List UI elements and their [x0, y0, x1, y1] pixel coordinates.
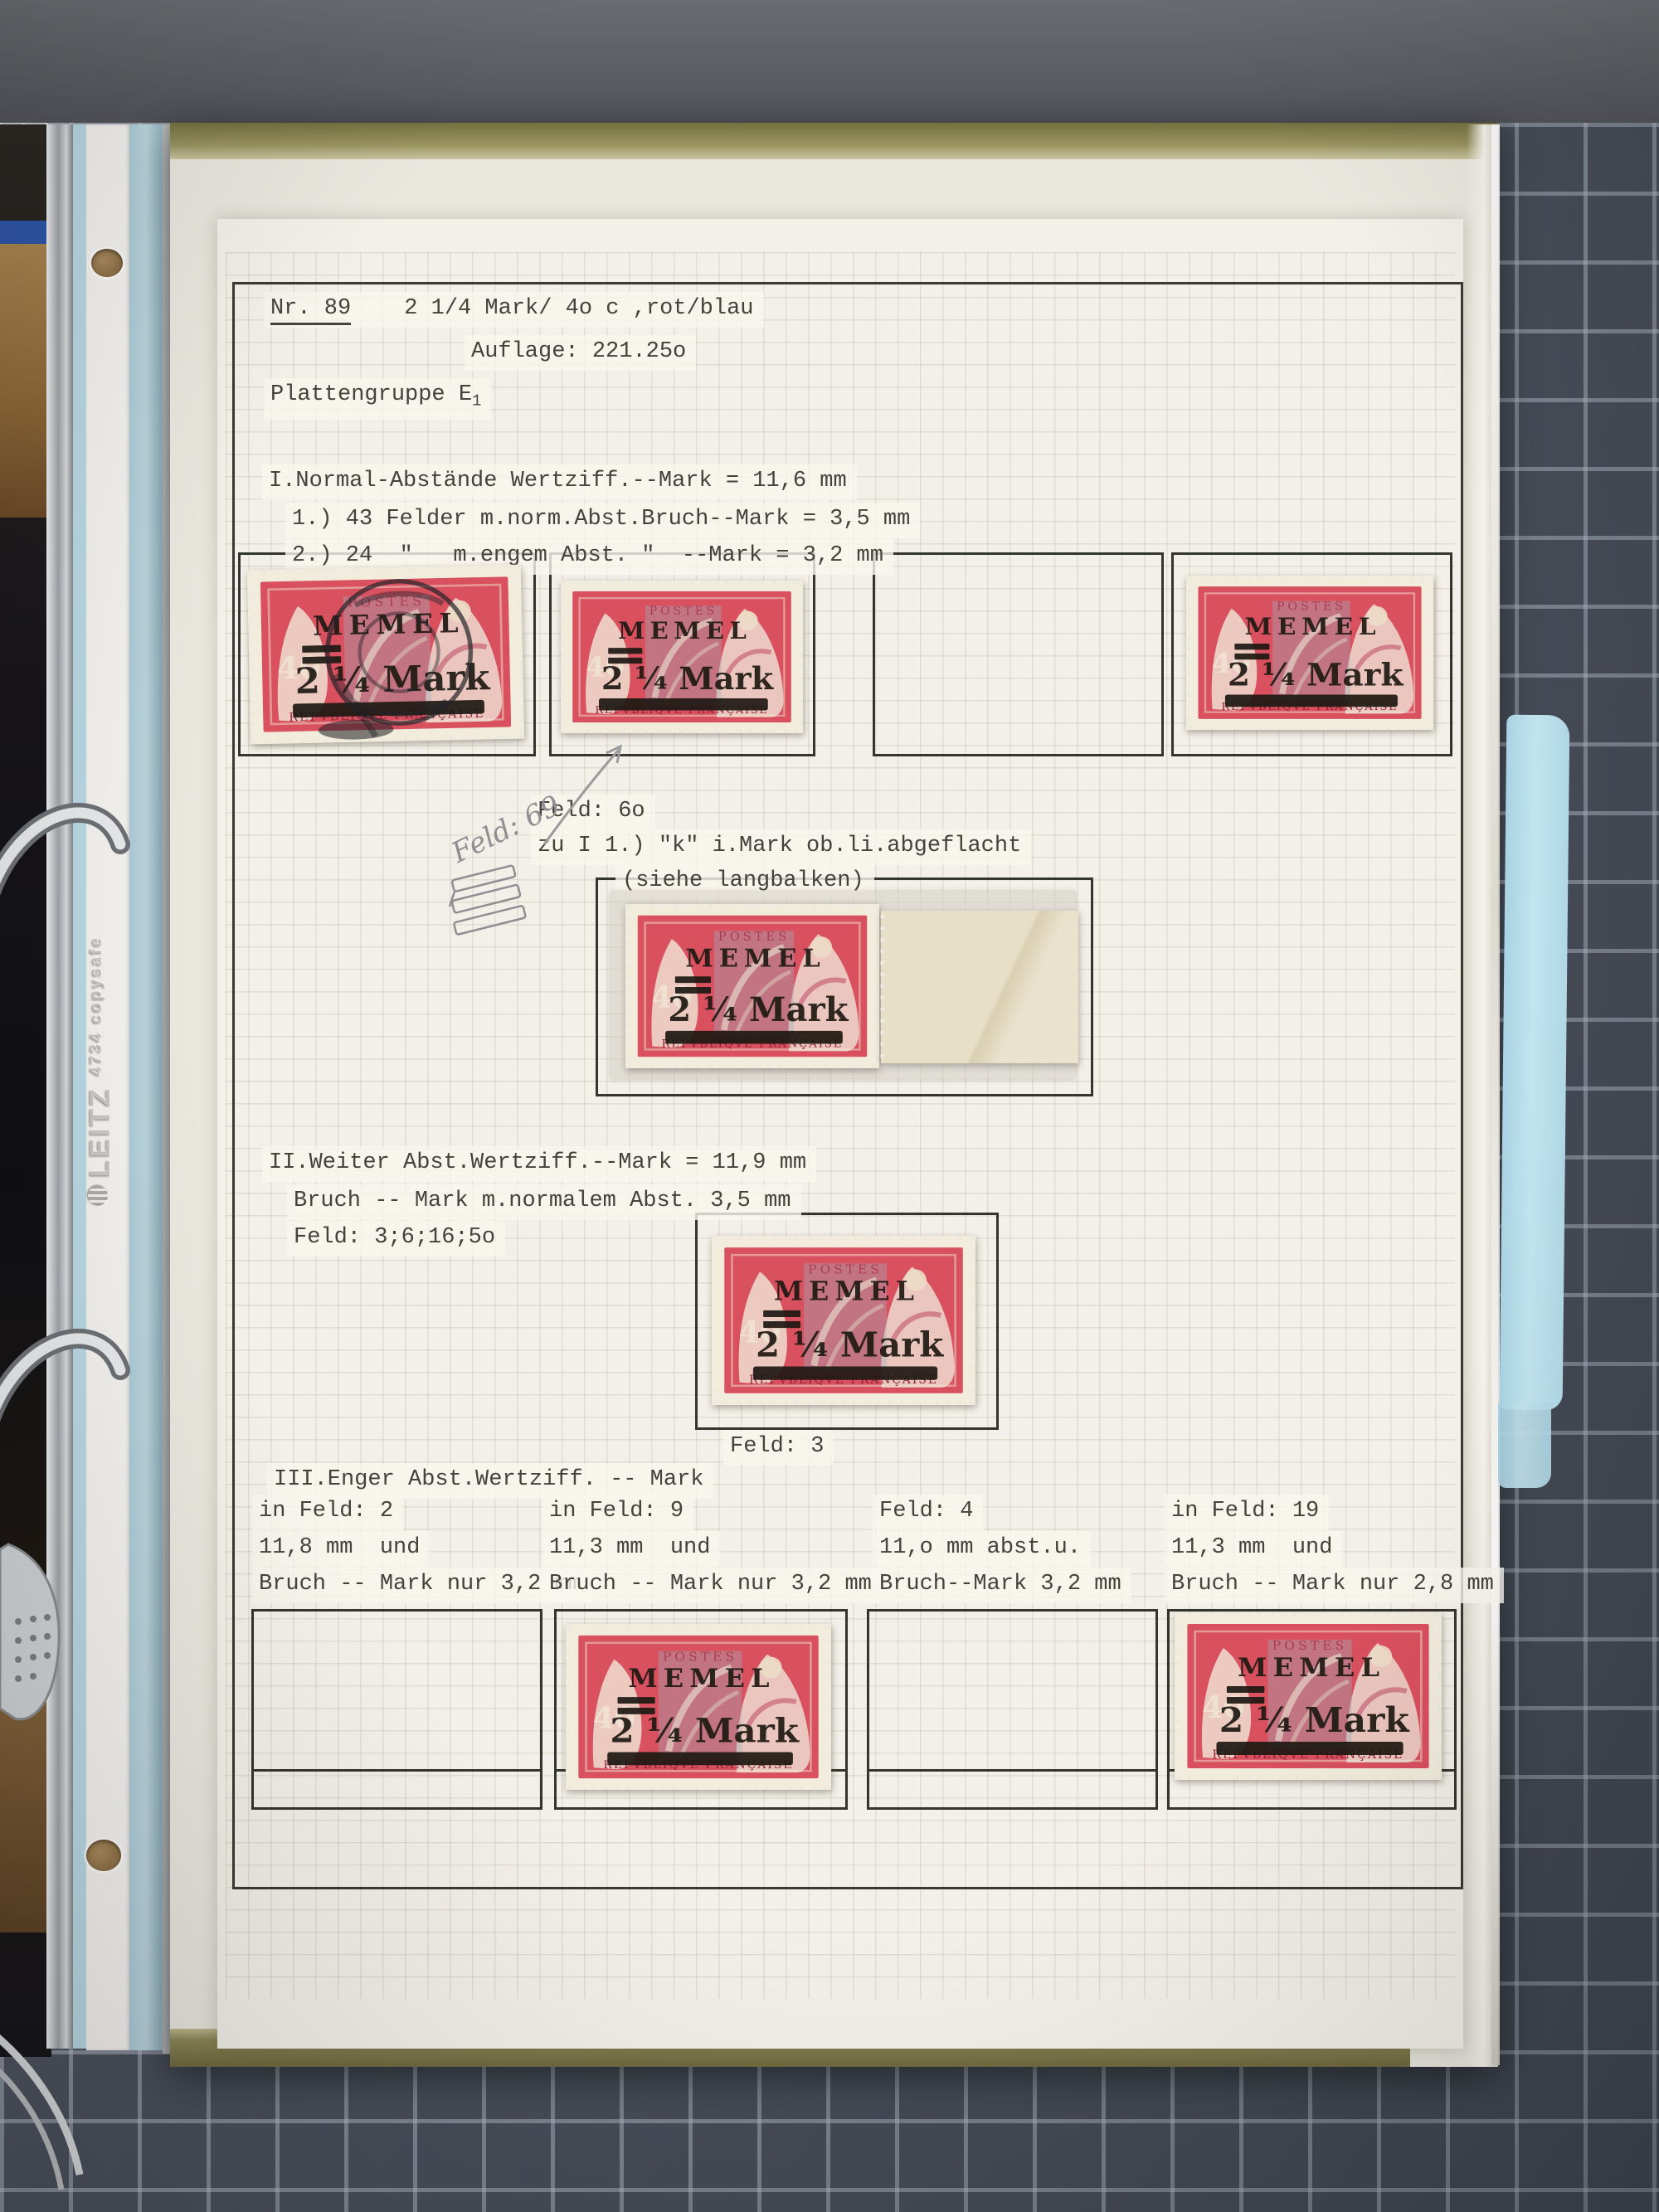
photo-of-stamp-album-page: 4734 copysafe LEITZ — [0, 0, 1659, 2212]
sheet-margin-selvage — [881, 911, 1078, 1063]
sleeve-sealed-edge-top — [170, 123, 1498, 159]
col4-line2: 11,3 mm und — [1165, 1531, 1342, 1567]
blue-index-card-tab-end — [1498, 1402, 1551, 1488]
wire-prong-1 — [0, 2034, 80, 2175]
col1-line3: Bruch -- Mark nur 3,2 mm — [252, 1568, 591, 1603]
col4-line3: Bruch -- Mark nur 2,8 mm — [1165, 1568, 1504, 1603]
stamp-mint-feld9 — [566, 1624, 831, 1790]
plate-group: Plattengruppe E — [270, 382, 472, 407]
col3-line1: Feld: 4 — [873, 1495, 983, 1530]
col4-line1: in Feld: 19 — [1165, 1495, 1329, 1530]
section3-heading: III.Enger Abst.Wertziff. -- Mark — [267, 1463, 713, 1499]
pencil-arrow — [521, 735, 645, 851]
stamp-description: 2 1/4 Mark/ 4o c ,rot/blau — [404, 296, 753, 321]
pencil-bars-sketch — [444, 858, 552, 950]
stamp-box-bottom-1-empty — [251, 1609, 542, 1810]
header-line-1: Nr. 892 1/4 Mark/ 4o c ,rot/blau — [264, 292, 764, 328]
col3-line3: Bruch--Mark 3,2 mm — [873, 1568, 1131, 1603]
stamp-mint-row1 — [561, 581, 803, 733]
section1-line1: I.Normal-Abstände Wertziff.--Mark = 11,6… — [262, 464, 857, 500]
section1-line2: 1.) 43 Felder m.norm.Abst.Bruch--Mark = … — [285, 503, 920, 538]
binder-clamp-lever — [0, 1544, 59, 1719]
col3-line2: 11,o mm abst.u. — [873, 1531, 1091, 1567]
col2-line2: 11,3 mm und — [542, 1531, 720, 1567]
col2-line3: Bruch -- Mark nur 3,2 mm — [542, 1568, 882, 1603]
col2-line1: in Feld: 9 — [542, 1495, 693, 1530]
section2-line3: Feld: 3;6;16;5o — [287, 1221, 505, 1257]
stamp-used-feld-cancelled — [247, 565, 524, 745]
header-line-2: Auflage: 221.25o — [465, 335, 696, 371]
col1-line1: in Feld: 2 — [252, 1495, 403, 1530]
stamp-mint-feld3 — [712, 1236, 975, 1405]
blue-index-card-tab — [1500, 715, 1570, 1411]
stamp-mint-with-selvage — [625, 904, 879, 1068]
plate-group-index: 1 — [472, 391, 481, 410]
header-line-3: Plattengruppe E1 — [264, 378, 491, 420]
stamp-mint-row1-right — [1186, 576, 1433, 730]
section2-line1: II.Weiter Abst.Wertziff.--Mark = 11,9 mm — [262, 1146, 816, 1182]
binder-rings-graphic — [0, 0, 216, 2212]
desk-surface — [0, 0, 1659, 124]
caption-feld-3: Feld: 3 — [723, 1430, 834, 1466]
stamp-mint-feld19 — [1175, 1612, 1442, 1780]
catalog-number: Nr. 89 — [270, 296, 351, 325]
stamp-box-row1-3-empty — [873, 552, 1164, 756]
stamp-box-bottom-3-empty — [867, 1609, 1158, 1810]
sleeve-fold-highlight — [1491, 124, 1500, 2065]
col1-line2: 11,8 mm und — [252, 1531, 430, 1567]
section2-line2: Bruch -- Mark m.normalem Abst. 3,5 mm — [287, 1184, 801, 1220]
print-run: Auflage: 221.25o — [471, 339, 686, 364]
